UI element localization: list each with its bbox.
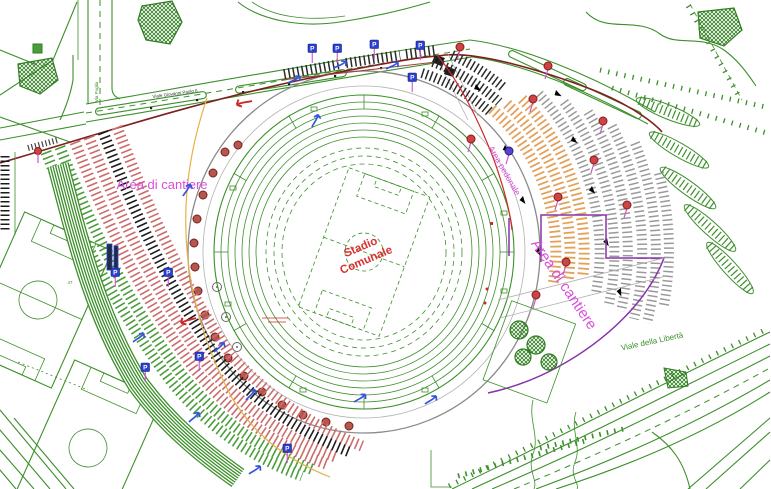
roads-top-left bbox=[0, 2, 430, 142]
parking-sign: P bbox=[308, 44, 317, 63]
svg-text:P: P bbox=[410, 75, 415, 82]
roads-top-right bbox=[470, 4, 770, 298]
construction-area-left-label: Area di cantiere bbox=[116, 177, 207, 192]
hedge-row bbox=[458, 441, 585, 476]
hedge-row bbox=[540, 428, 628, 448]
street-label-via-puglia: Via Puglia bbox=[94, 81, 99, 102]
street-via-puglia: Via Puglia bbox=[78, 0, 120, 105]
svg-text:P: P bbox=[197, 354, 202, 361]
parking-strip bbox=[406, 50, 436, 54]
parking-sign: P bbox=[111, 268, 120, 287]
svg-text:P: P bbox=[372, 42, 377, 49]
tree-cluster bbox=[18, 58, 58, 94]
tree-cluster bbox=[664, 368, 688, 388]
svg-text:P: P bbox=[285, 446, 290, 453]
light-pole bbox=[554, 193, 562, 210]
svg-text:P: P bbox=[113, 270, 118, 277]
street-viale-della-liberta: Viale della Libertà bbox=[431, 329, 770, 489]
construction-area-right-label: Area di cantiere bbox=[527, 236, 600, 333]
parking-fan-right bbox=[422, 55, 669, 323]
parking-sign: P bbox=[195, 352, 204, 371]
site-boundary-purple bbox=[541, 215, 664, 262]
arrow-icon bbox=[237, 98, 252, 108]
tree-cluster bbox=[138, 1, 182, 44]
svg-text:P: P bbox=[166, 270, 171, 277]
light-pole bbox=[467, 135, 475, 152]
plot-number-label: 47 bbox=[67, 280, 73, 285]
embankment-strip bbox=[646, 127, 712, 173]
light-pole bbox=[505, 147, 513, 164]
street-label-liberta: Viale della Libertà bbox=[620, 330, 684, 352]
arrow-icon bbox=[424, 395, 438, 404]
site-plan-canvas[interactable]: Via Puglia Viale Giovanni Paolo II bbox=[0, 0, 771, 489]
arrow-icon bbox=[333, 61, 346, 68]
parking-sign: P bbox=[408, 73, 417, 92]
tree-cluster bbox=[698, 8, 742, 46]
embankment bbox=[600, 70, 770, 108]
stadium-label: Stadio Comunale bbox=[333, 231, 394, 277]
svg-text:P: P bbox=[418, 43, 423, 50]
svg-text:P: P bbox=[143, 365, 148, 372]
svg-text:P: P bbox=[310, 46, 315, 53]
embankment-strip bbox=[702, 238, 758, 298]
tree-cluster bbox=[510, 321, 557, 370]
arrow-icon bbox=[248, 465, 262, 474]
svg-text:P: P bbox=[335, 46, 340, 53]
street-label-giovanni-paolo: Viale Giovanni Paolo II bbox=[152, 88, 198, 99]
parking-strip bbox=[422, 73, 490, 112]
site-plan-viewport[interactable]: Via Puglia Viale Giovanni Paolo II bbox=[0, 0, 771, 489]
